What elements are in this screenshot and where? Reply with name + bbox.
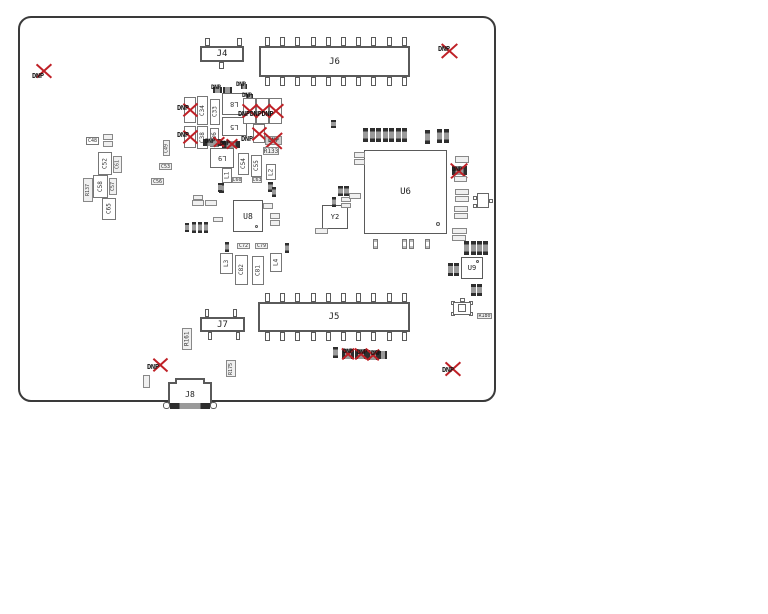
dnp-label: DNP [236,81,246,88]
dnp-label: DNP [211,84,221,91]
ref-label: J4 [217,49,228,59]
component-r137: R137 [83,178,93,202]
component-c55: C55 [251,155,262,177]
ref-label: L9 [218,154,226,162]
component-small [477,241,482,255]
u6-pin1-dot [436,222,440,226]
ref-label: J5 [329,312,340,322]
component-small [333,347,338,358]
component-small [402,128,407,142]
component-small [437,129,442,143]
component-small [204,222,208,233]
component-r180: R180 [477,313,492,319]
component-u9: U9 [461,257,483,279]
transistor-pin [473,204,477,208]
component-l3: L3 [220,253,233,274]
connector-j8-tab [175,378,205,384]
component-small [185,223,189,232]
ref-label: U9 [468,264,476,272]
component-r161: R161 [182,328,192,350]
component-c54: C54 [238,153,249,175]
component-small [471,241,476,255]
component-small-label [455,156,469,163]
switch-stub [460,298,465,302]
connector-pin [219,62,224,69]
component-small [448,263,453,276]
dnp-label: DNP [452,166,462,173]
connector-pin [205,309,209,317]
component-c52: C52 [98,152,112,175]
ref-label: C52 [102,158,109,169]
ref-label: C82 [238,265,245,276]
ref-label: L8 [230,100,238,108]
component-small-label [455,196,469,202]
u9-pin1-dot [476,260,479,263]
component-c60: C60 [232,177,242,183]
component-c79: C79 [255,243,268,249]
dnp-cross-icon [263,134,284,147]
component-small [198,222,202,233]
connector-pin [280,37,285,46]
component-l1: L1 [222,168,232,183]
transistor-pin [489,199,493,203]
connector-pin [311,293,316,302]
component-small-label [455,189,469,195]
connector-pin [295,293,300,302]
ref-label: C65 [106,204,113,215]
ref-label: C55 [253,161,260,172]
connector-pin [208,332,212,340]
connector-pin [311,77,316,86]
component-small [389,128,394,142]
component-transistor [477,193,489,208]
component-small [373,239,378,249]
component-small-label [143,375,150,388]
ref-label: C81 [255,265,262,276]
ref-label: U6 [400,187,411,197]
component-small [444,129,449,143]
component-small [454,263,459,276]
ref-label: U8 [243,212,253,221]
component-small [409,239,414,249]
connector-pin [326,77,331,86]
connector-pin [295,332,300,341]
component-c82: C82 [235,255,248,285]
connector-pin [341,332,346,341]
dnp-label: DNPDNPDNP [238,110,273,118]
ref-label: L5 [230,123,238,131]
component-small [338,186,343,196]
ref-label: J8 [185,390,195,399]
connector-j7: J7 [200,317,245,332]
component-u6: U6 [364,150,447,234]
component-r133: R133 [263,147,279,155]
component-r175: R175 [226,360,236,377]
component-small-label [454,206,468,212]
connector-pin [402,37,407,46]
connector-pin [280,77,285,86]
dnp-label: DNP [177,104,189,112]
component-small [331,120,336,128]
connector-pin [280,332,285,341]
connector-j5: J5 [258,302,410,332]
component-c61: C61 [113,156,122,173]
connector-pin [402,332,407,341]
component-small [464,241,469,255]
component-c81: C81 [252,256,264,285]
component-small-label [213,217,223,222]
dnp-label: DNP [220,140,230,147]
component-small-label [270,220,280,226]
component-small [425,239,430,249]
connector-pin [387,293,392,302]
connector-pin [236,332,240,340]
dnp-label: DNP [442,366,454,374]
dnp-label: DNP [241,135,253,143]
component-small-label [349,193,361,199]
component-small-label [103,134,113,140]
component-small-label [263,203,273,209]
connector-pin [371,77,376,86]
component-small [363,128,368,142]
component-small-label [341,203,351,208]
component-small [471,284,476,296]
connector-pin [371,293,376,302]
connector-pin [265,293,270,302]
dnp-label: DNP [343,348,353,355]
component-small [218,183,222,192]
connector-pin [341,293,346,302]
connector-pin [356,77,361,86]
connector-pin [265,37,270,46]
connector-pin [402,77,407,86]
ref-label: C34 [199,105,206,116]
connector-pin [402,293,407,302]
component-small-label [192,200,204,206]
connector-pin [387,37,392,46]
dnp-label: DNP [371,350,381,357]
pcb-assembly-drawing: J4 J6 J5 J7 J8 U6 U8 U9 Y2 * L8 L5 L9 C3… [0,0,768,614]
component-l9: L9 [210,148,234,168]
connector-pin [233,309,237,317]
component-c33: C33 [210,99,220,125]
connector-pin [295,37,300,46]
component-small-label [454,176,467,182]
dnp-label: DNP [205,138,215,145]
component-small [285,243,289,253]
u8-pin1-dot [255,225,258,228]
component-small [402,239,407,249]
connector-pin [371,37,376,46]
connector-pin [387,332,392,341]
component-c58: C58 [93,175,108,198]
connector-pin [280,293,285,302]
transistor-pin [473,196,477,200]
connector-j4: J4 [200,46,244,62]
j8-foot-left [163,402,170,409]
ref-label: L2 [268,168,275,175]
component-c48: C48 [86,137,99,145]
component-small [272,187,276,197]
component-small [192,222,196,233]
component-small [396,128,401,142]
j8-shield-pads [170,403,210,409]
ref-label: C33 [212,107,219,118]
connector-pin [371,332,376,341]
ref-label: C54 [240,159,247,170]
connector-pin [326,293,331,302]
component-c49: C49 [163,140,170,156]
ref-label: J7 [217,320,228,330]
component-c56: C56 [151,178,164,185]
component-small-label [354,159,365,165]
connector-pin [265,77,270,86]
component-l4: L4 [270,253,282,272]
component-c65: C65 [102,198,116,220]
component-small-label [454,213,468,219]
component-small [425,130,430,144]
component-small [483,241,488,255]
component-small [383,128,388,142]
component-small-label [103,141,113,147]
component-small-label [452,228,467,234]
connector-pin [311,37,316,46]
connector-pin [356,293,361,302]
dnp-label: DNP [177,131,189,139]
j8-foot-right [210,402,217,409]
connector-pin [356,37,361,46]
connector-pin [295,77,300,86]
component-small [223,87,232,93]
ref-label: L1 [224,172,231,179]
dnp-label: DNP [32,72,44,80]
component-small-label [315,228,328,234]
connector-pin [341,77,346,86]
switch-button [458,304,466,312]
ref-label: J6 [329,57,340,67]
component-l2: L2 [266,164,276,180]
dnp-label: DNP [147,363,159,371]
dnp-label: DNP [438,45,450,53]
component-small [225,242,229,252]
component-c63: C63 [252,177,262,183]
connector-pin [326,332,331,341]
component-c57: C57 [109,178,117,195]
connector-pin [205,38,210,46]
connector-pin [356,332,361,341]
dnp-label: DNP [357,349,367,356]
ref-label: L3 [223,260,230,267]
component-c72: C72 [237,243,250,249]
component-small [332,197,336,207]
component-u8: U8 [233,200,263,232]
component-c53: C53 [159,163,172,170]
connector-pin [237,38,242,46]
ref-label: C58 [97,181,104,192]
connector-pin [326,37,331,46]
connector-pin [265,332,270,341]
component-small [477,284,482,296]
component-small-label [270,213,280,219]
ref-label: Y2 [331,213,339,221]
connector-pin [387,77,392,86]
connector-pin [311,332,316,341]
component-small-label [354,152,365,158]
ref-label: L4 [273,259,280,266]
connector-j6: J6 [259,46,410,77]
component-small [370,128,375,142]
component-small-label [205,200,217,206]
connector-pin [341,37,346,46]
component-c34: C34 [197,96,208,125]
component-small [376,128,381,142]
